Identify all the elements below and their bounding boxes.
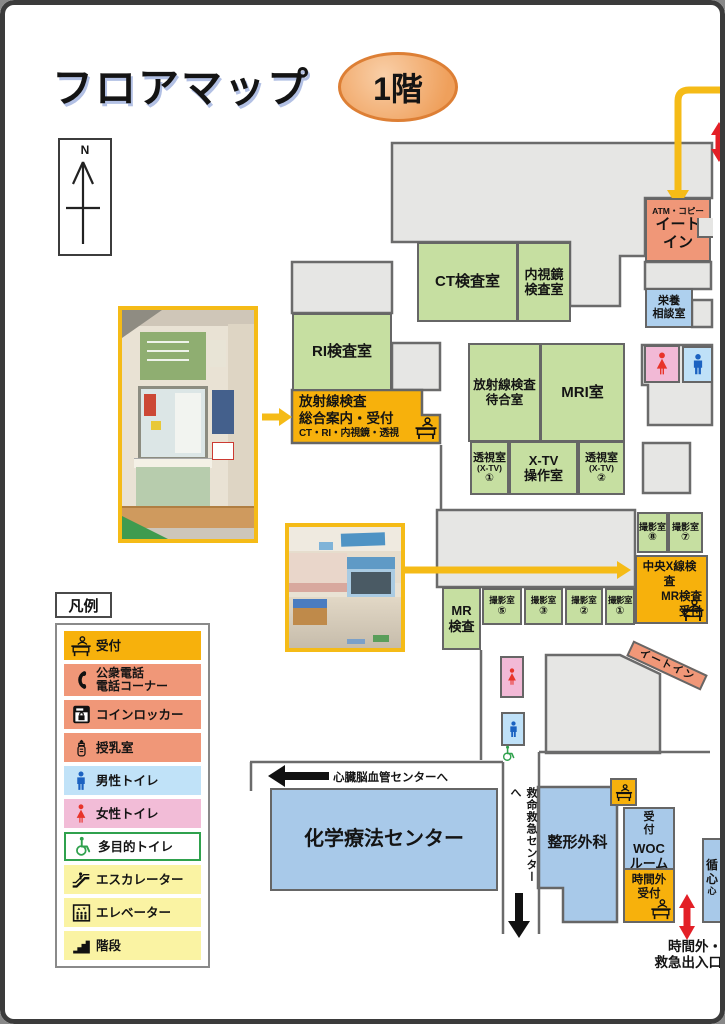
room-ct-label: CT検査室	[435, 273, 500, 291]
legend-item-stairs: 階段	[64, 931, 201, 960]
floor-map-page: フロアマップ 1階 N ATM・コピー イート イン 栄養 相談室 CT検査室 …	[0, 0, 725, 1024]
coin-locker-icon	[66, 704, 96, 725]
room-chemotherapy-center: 化学療法センター	[270, 788, 498, 891]
room-xray-2: 撮影室 ②	[565, 588, 603, 625]
room-orthopedics-label: 整形外科	[538, 831, 617, 852]
orthopedics-reception-iconbox	[610, 778, 637, 806]
photo1-red-poster	[144, 394, 156, 416]
radiology-waiting-label-1: 放射線検査	[473, 378, 536, 393]
reception-icon	[413, 415, 439, 441]
room-nutrition-counseling: 栄養 相談室	[645, 288, 693, 328]
black-arrow-emergency-center	[508, 893, 530, 938]
photo2-left-wall	[289, 553, 347, 587]
photo2-kiosk-window	[351, 572, 391, 594]
fluoroscopy1-number: ①	[485, 473, 494, 484]
photo-waiting-corridor	[285, 523, 405, 652]
photo2-wainscot	[289, 583, 347, 592]
male-toilet-icon	[687, 352, 709, 377]
xray5-number: ⑤	[498, 606, 507, 617]
room-endoscopy-exam: 内視鏡 検査室	[517, 242, 571, 322]
legend-item-public-phone: 公衆電話 電話コーナー	[64, 664, 201, 696]
atm-corner-notch	[697, 218, 713, 238]
xtv-control-label-2: 操作室	[524, 468, 563, 483]
after-hours-entrance-label: 時間外・ 救急出入口	[628, 939, 722, 970]
legend-item-escalator: エスカレーター	[64, 865, 201, 894]
room-eatin-label-1: イート	[655, 216, 700, 234]
room-ct-exam: CT検査室	[417, 242, 518, 322]
legend-item-coin-locker: コインロッカー	[64, 700, 201, 729]
to-emergency-center-label: 救命救急センターへ	[507, 787, 539, 889]
room-xray-1: 撮影室 ①	[605, 588, 635, 625]
radiology-reception-label-2: 総合案内・受付	[299, 411, 431, 428]
legend-label-reception: 受付	[96, 639, 121, 653]
photo2-floor-sign	[347, 639, 365, 644]
accessible-toilet-icon	[68, 836, 98, 857]
photo1-green-sign	[140, 332, 206, 380]
yellow-photo1-arrow	[262, 408, 292, 426]
chemotherapy-label: 化学療法センター	[304, 828, 464, 852]
room-mr-exam: MR 検査	[442, 587, 481, 650]
male-toilet-box	[682, 346, 713, 383]
accessible-toilet-icon	[498, 745, 520, 762]
emergency-center-text: 救命救急センターへ	[509, 787, 537, 883]
photo1-sign-text-lines	[147, 341, 189, 367]
room-ri-exam: RI検査室	[292, 313, 392, 391]
photo2-bench-cushion	[293, 599, 327, 608]
legend-label-locker: コインロッカー	[96, 708, 184, 722]
xray8-number: ⑧	[648, 532, 657, 543]
page-title: フロアマップ	[52, 54, 310, 114]
legend-label-elevator: エレベーター	[96, 906, 171, 920]
room-orthopedics-shape	[538, 787, 617, 922]
central-xray-label-1: 中央X線検査	[637, 560, 702, 590]
photo1-counter-window	[138, 386, 208, 460]
photo2-green-mat	[373, 635, 389, 642]
room-radiology-waiting: 放射線検査 待合室	[468, 343, 541, 442]
cardiology-char-3: 心	[707, 886, 716, 897]
legend-label-phone-1: 公衆電話	[96, 667, 168, 680]
north-arrow-icon	[60, 156, 106, 250]
mr-exam-label-2: 検査	[448, 619, 474, 634]
escalator-icon	[66, 869, 96, 890]
female-toilet-icon	[650, 351, 674, 377]
radiology-reception-label-1: 放射線検査	[299, 394, 431, 411]
legend-title: 凡例	[68, 595, 98, 616]
cardiology-char-2: 心	[706, 872, 718, 886]
room-nutrition-label-1: 栄養	[658, 295, 680, 308]
public-phone-icon	[66, 669, 96, 691]
photo1-small-sign	[210, 340, 226, 367]
room-mri: MRI室	[540, 343, 625, 442]
after-hours-entrance-line-2: 救急出入口	[628, 955, 722, 971]
male-toilet-icon	[505, 719, 522, 740]
photo1-poster-board	[212, 390, 234, 434]
legend-label-male-toilet: 男性トイレ	[96, 774, 159, 788]
reception-icon	[66, 635, 96, 657]
room-xtv-control: X-TV 操作室	[509, 441, 578, 495]
photo2-kiosk-sign	[347, 557, 395, 569]
legend-item-nursing-room: 授乳室	[64, 733, 201, 762]
red-entrance-arrow-bottom	[679, 894, 695, 940]
woc-reception-label: 受付	[625, 811, 673, 837]
room-fluoroscopy-2: 透視室 (X-TV) ②	[578, 441, 625, 495]
reception-icon	[649, 898, 673, 920]
legend-box: 受付 公衆電話 電話コーナー コインロッカー 授乳室 男性トイレ 女性トイレ	[55, 623, 210, 968]
woc-label-1: WOC	[633, 841, 665, 856]
female-toilet-box	[500, 656, 524, 698]
radiology-reception-label-3: CT・RI・内視鏡・透視	[299, 428, 431, 441]
room-atm-copy-label: ATM・コピー	[652, 206, 704, 216]
room-mri-label: MRI室	[561, 384, 604, 402]
legend-item-reception: 受付	[64, 631, 201, 660]
male-toilet-icon	[66, 770, 96, 792]
female-toilet-box	[644, 345, 680, 383]
room-xray-7: 撮影室 ⑦	[668, 512, 703, 553]
female-toilet-icon	[503, 666, 521, 688]
north-label: N	[60, 143, 110, 157]
photo2-hanging-sign	[341, 532, 385, 547]
fluoroscopy2-number: ②	[597, 473, 606, 484]
legend-title-box: 凡例	[55, 592, 112, 618]
room-nutrition-label-2: 相談室	[653, 308, 686, 321]
room-ri-label: RI検査室	[312, 343, 372, 361]
photo1-window-glare	[175, 393, 201, 453]
room-radiology-reception: 放射線検査 総合案内・受付 CT・RI・内視鏡・透視	[299, 394, 431, 440]
photo1-red-border-poster	[212, 442, 234, 460]
heart-brain-text: 心臓脳血管センターへ	[333, 772, 448, 784]
orthopedics-label: 整形外科	[547, 834, 607, 851]
legend-label-female-toilet: 女性トイレ	[96, 807, 159, 821]
to-heart-brain-center-label: 心臓脳血管センターへ	[333, 769, 473, 785]
room-endoscopy-label-1: 内視鏡	[524, 267, 563, 282]
radiology-waiting-label-2: 待合室	[486, 393, 524, 408]
floor-badge-label: 1階	[373, 64, 423, 110]
room-xray-3: 撮影室 ③	[524, 588, 563, 625]
room-xray-8: 撮影室 ⑧	[637, 512, 668, 553]
room-endoscopy-label-2: 検査室	[524, 282, 563, 297]
male-toilet-box	[501, 712, 525, 746]
xray3-number: ③	[539, 606, 548, 617]
photo1-yellow-poster	[151, 421, 161, 430]
xray7-number: ⑦	[681, 532, 690, 543]
xray1-number: ①	[616, 606, 625, 617]
legend-item-male-toilet: 男性トイレ	[64, 766, 201, 795]
xtv-control-label-1: X-TV	[529, 453, 559, 468]
nursing-room-icon	[66, 737, 96, 759]
reception-icon	[680, 598, 706, 622]
room-cardiology-clipped: 循 心 心	[702, 838, 722, 923]
legend-label-accessible-toilet: 多目的トイレ	[98, 840, 173, 854]
photo-radiology-reception-counter	[118, 306, 258, 543]
stairs-icon	[66, 936, 96, 956]
legend-item-accessible-toilet: 多目的トイレ	[64, 832, 201, 861]
after-hours-label-1: 時間外	[632, 873, 667, 887]
legend-label-nursing: 授乳室	[96, 741, 134, 755]
north-compass: N	[58, 138, 112, 256]
after-hours-entrance-line-1: 時間外・	[628, 939, 722, 955]
legend-label-escalator: エスカレーター	[96, 873, 184, 887]
legend-label-stairs: 階段	[96, 939, 121, 953]
room-fluoroscopy-1: 透視室 (X-TV) ①	[470, 441, 509, 495]
elevator-icon	[66, 902, 96, 923]
female-toilet-icon	[66, 803, 96, 825]
photo2-small-sign	[319, 542, 333, 550]
legend-label-phone-2: 電話コーナー	[96, 680, 168, 693]
floor-badge: 1階	[338, 52, 458, 122]
xray2-number: ②	[580, 606, 589, 617]
reception-icon	[614, 783, 634, 802]
room-xray-5: 撮影室 ⑤	[482, 588, 522, 625]
photo2-bench	[293, 599, 327, 625]
black-arrow-heart-center	[268, 765, 329, 787]
cardiology-char-1: 循	[706, 858, 718, 872]
room-eatin-label-2: イン	[663, 234, 693, 252]
legend-item-elevator: エレベーター	[64, 898, 201, 927]
mr-exam-label-1: MR	[451, 603, 471, 618]
legend-item-female-toilet: 女性トイレ	[64, 799, 201, 828]
